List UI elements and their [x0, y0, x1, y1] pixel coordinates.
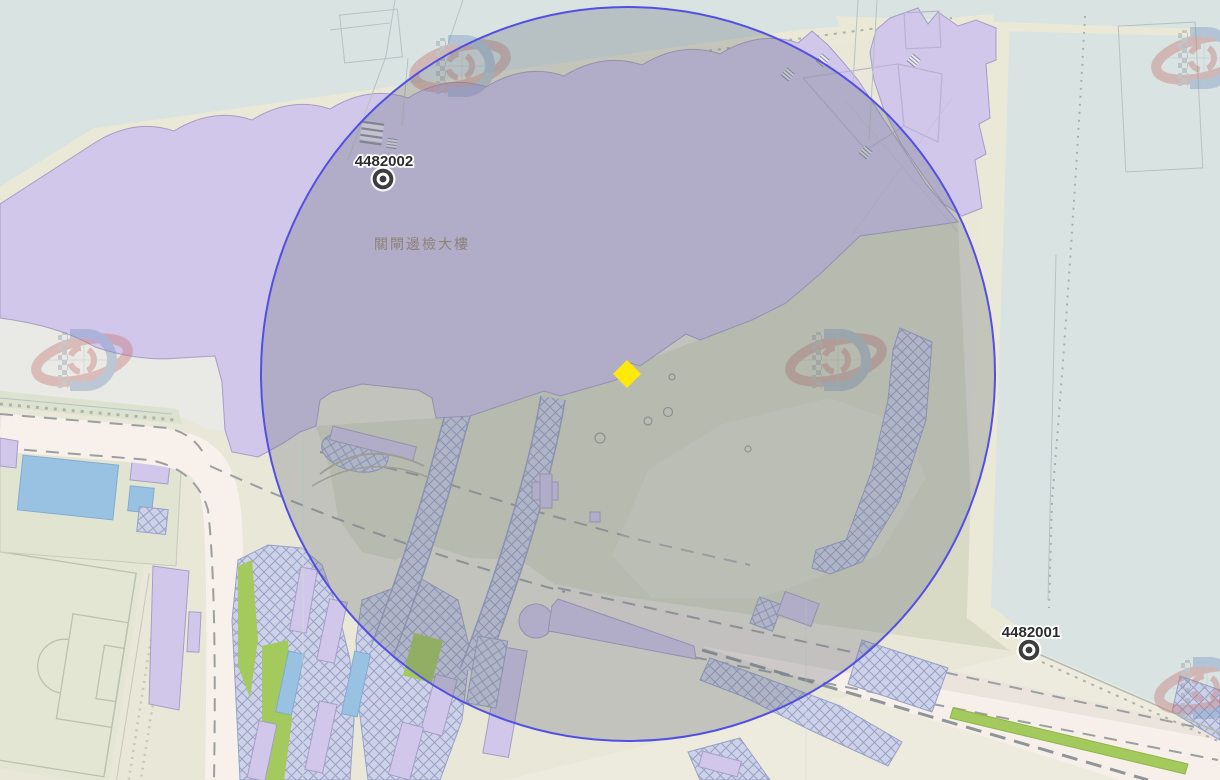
survey-marker-label: 4482001 — [1002, 624, 1060, 641]
map-viewport[interactable]: 4482002 4482001 關閘邊檢大樓 — [0, 0, 1220, 780]
swimming-pool — [17, 455, 118, 520]
survey-marker-label: 4482002 — [355, 153, 413, 170]
map-canvas[interactable]: 4482002 4482001 關閘邊檢大樓 — [0, 0, 1220, 780]
building-label: 關閘邊檢大樓 — [374, 236, 470, 253]
